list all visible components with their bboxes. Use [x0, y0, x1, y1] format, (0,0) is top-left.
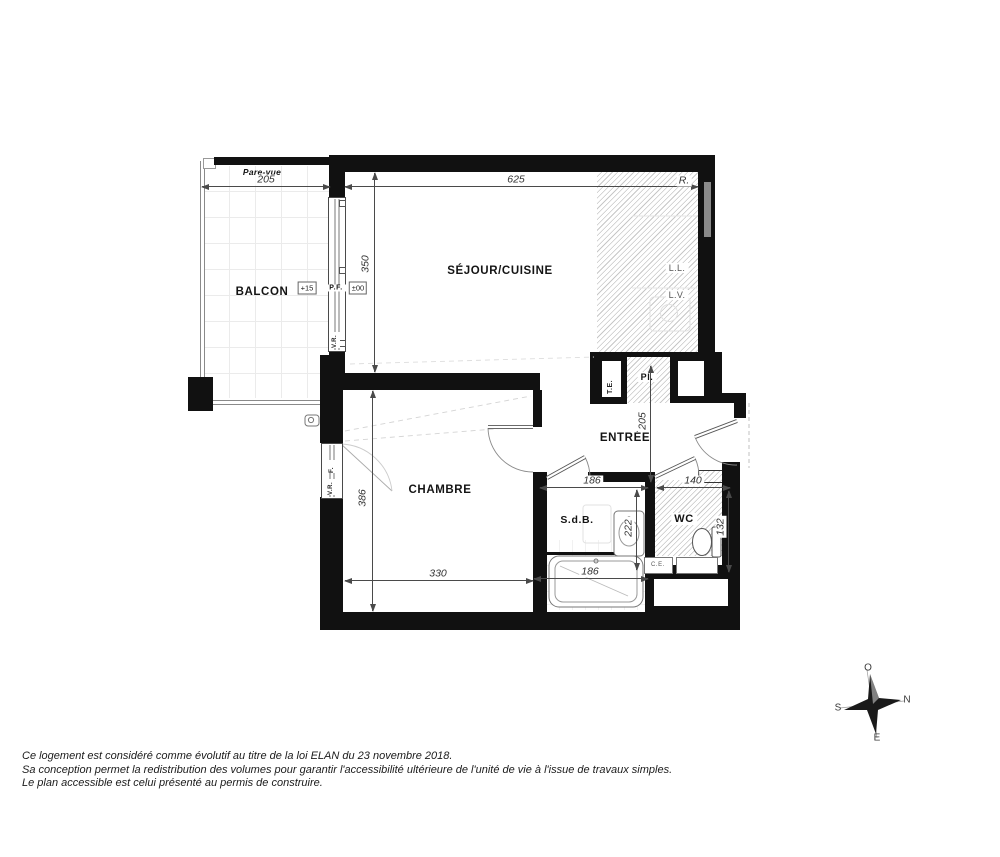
compass-ouest: O [864, 663, 872, 674]
wall-chambre-door-jamb [533, 390, 542, 427]
entry-door-arc [695, 437, 737, 465]
wall-sdb-left [533, 472, 547, 612]
dim-chambre-profondeur-line [372, 391, 373, 611]
balcony-bottom-edge [200, 400, 331, 405]
entry-door-leaf [695, 421, 737, 437]
chambre-door-arc [488, 428, 533, 472]
compass-nord: N [903, 695, 910, 706]
dim-baignoire-largeur: 186 [579, 567, 601, 578]
wall-bottom [320, 612, 740, 630]
label-chauffe-eau: C.E. [651, 562, 665, 568]
window-handle-2 [339, 267, 346, 274]
dim-balcon-largeur: 205 [255, 175, 277, 186]
label-fenetre: F. [327, 460, 336, 473]
dim-sejour-profondeur-line [374, 173, 375, 372]
downspout-pipe [308, 417, 313, 422]
entry-door-leaf-inner [695, 421, 737, 437]
window-handle-3 [339, 340, 346, 347]
dim-baignoire-largeur-line [534, 578, 648, 579]
kitchen-duct-bar [704, 182, 711, 237]
dim-entree-longueur: 205 [638, 410, 649, 432]
compass: O N S E [825, 655, 925, 750]
dim-sdb-largeur: 186 [581, 476, 603, 487]
tub-partition-line [547, 552, 617, 555]
dim-sejour-largeur-line [345, 186, 698, 187]
label-volet-roulant-chambre: V.R. [327, 479, 336, 495]
wall-entry-stub [734, 403, 746, 418]
legal-note-line1: Ce logement est considéré comme évolutif… [22, 750, 672, 764]
window-handle-1 [339, 200, 346, 207]
dim-chambre-profondeur: 386 [358, 487, 369, 509]
dim-sejour-profondeur: 350 [361, 253, 372, 275]
closet-right-inner [678, 361, 704, 396]
label-volet-roulant-sejour: V.R. [331, 332, 340, 348]
pare-vue-screen [214, 157, 331, 165]
downspout [305, 415, 319, 426]
compass-sud: S [835, 703, 842, 714]
dim-wc-largeur: 140 [682, 476, 704, 487]
floor-plan-canvas: BALCON SÉJOUR/CUISINE CHAMBRE ENTRÉE S.d… [0, 0, 1000, 857]
label-porte-fenetre: P.F. [326, 285, 346, 292]
compass-est: E [874, 733, 881, 744]
wall-chamber-left-lower [320, 497, 343, 612]
dim-chambre-largeur-line [345, 580, 533, 581]
room-label-balcon: BALCON [236, 286, 289, 298]
level-badge-balcon: +15 [298, 282, 317, 295]
dim-wc-profondeur-line [728, 491, 729, 572]
dim-chambre-largeur: 330 [427, 569, 449, 580]
chambre-window-swing-arc [341, 444, 392, 491]
dim-balcon-largeur-line [202, 186, 330, 187]
room-label-placard: Pl. [638, 372, 657, 382]
label-tableau-electrique: T.E. [606, 366, 615, 394]
wall-sejour-left-top [329, 155, 345, 197]
room-label-entree: ENTRÉE [600, 432, 650, 444]
dim-sdb-profondeur-line [636, 490, 637, 570]
legal-note-line3: Le plan accessible est celui présenté au… [22, 777, 672, 791]
sdb-door-leaf-inner [547, 457, 585, 478]
dim-sejour-largeur: 625 [505, 175, 527, 186]
wall-sejour-chambre [343, 373, 540, 390]
dim-wc-largeur-line [657, 487, 730, 488]
porte-fenetre-glazing [335, 199, 340, 350]
level-badge-interieur: ±00 [349, 282, 367, 295]
dim-entree-longueur-line [650, 366, 651, 482]
label-lave-vaisselle: L.V. [666, 290, 689, 300]
dim-sdb-profondeur: 222 [624, 517, 635, 539]
dim-wc-profondeur: 132 [716, 516, 727, 538]
balcony-left-edge [200, 161, 205, 404]
legal-note-line2: Sa conception permet la redistribution d… [22, 764, 672, 778]
wc-shelf-box [676, 557, 718, 574]
legal-notes: Ce logement est considéré comme évolutif… [22, 750, 672, 791]
room-label-wc: WC [671, 513, 697, 525]
sdb-door-leaf [547, 457, 585, 478]
dim-sdb-largeur-line [540, 487, 648, 488]
chambre-window-swing-line [341, 444, 392, 491]
duct-box [654, 579, 728, 606]
room-label-chambre: CHAMBRE [409, 484, 472, 496]
sightline-sejour [350, 357, 594, 364]
label-lave-linge: L.L. [666, 263, 689, 273]
balcony-corner-block [188, 377, 213, 411]
room-label-sdb: S.d.B. [560, 514, 593, 526]
porte-fenetre-window [328, 197, 346, 352]
wall-top [330, 155, 715, 172]
wall-sejour-left-bottom [329, 350, 345, 375]
room-label-sejour: SÉJOUR/CUISINE [447, 265, 553, 277]
label-refrigerateur: R. [677, 176, 692, 187]
